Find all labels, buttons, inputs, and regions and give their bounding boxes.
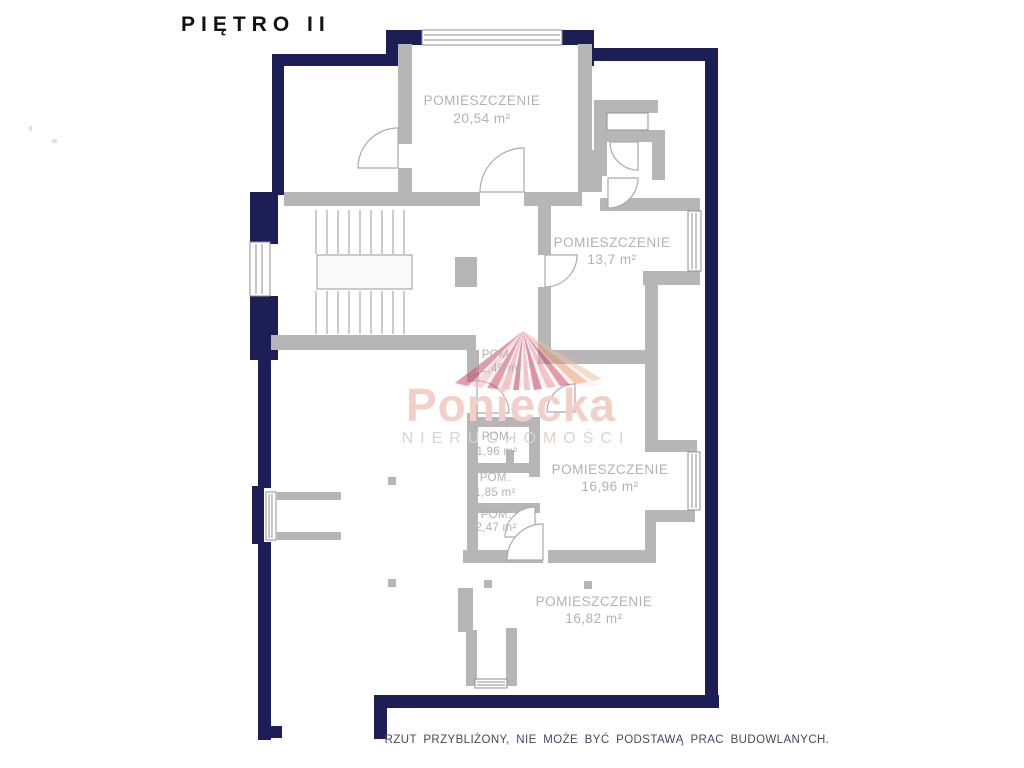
window-staircase [250, 242, 270, 296]
room-name: POM. [481, 509, 512, 521]
room-area: 2,47 m² [475, 522, 516, 534]
window-top [422, 30, 562, 45]
page-title: PIĘTRO II [181, 13, 331, 36]
room-name: POMIESZCZENIE [424, 93, 541, 108]
window-bay-137 [688, 211, 701, 271]
window-bay-1696 [688, 452, 700, 510]
floorplan-drawing: PIĘTRO II [0, 0, 1024, 768]
staircase [316, 210, 412, 334]
room-name: POM. [480, 472, 511, 484]
room-area: 1,96 m² [476, 446, 517, 458]
door-vestibule-1 [610, 142, 638, 170]
room-area: 16,96 m² [581, 479, 638, 494]
door-room-2054-left [358, 128, 398, 168]
room-name: POM. [482, 431, 513, 443]
room-name: POM. [482, 349, 513, 361]
door-room-137 [545, 255, 577, 287]
room-label-2054: POMIESZCZENIE 20,54 m² [424, 93, 541, 126]
door-room-2054-bottom [480, 148, 524, 192]
stair-landing [317, 255, 412, 289]
room-label-1682: POMIESZCZENIE 16,82 m² [536, 594, 653, 626]
floorplan-page: PIĘTRO II [0, 0, 1024, 768]
room-name: POMIESZCZENIE [552, 462, 669, 477]
room-area: 12,49 m² [474, 363, 522, 375]
room-name: POMIESZCZENIE [554, 235, 671, 250]
room-area: 1,85 m² [474, 487, 515, 499]
room-area: 13,7 m² [587, 252, 636, 267]
scan-artifact [29, 126, 57, 143]
room-area: 16,82 m² [565, 611, 622, 626]
room-area: 20,54 m² [453, 111, 510, 126]
room-label-185: POM. 1,85 m² [474, 472, 515, 499]
vestibule-shaft [607, 113, 648, 130]
disclaimer-text: RZUT PRZYBLIŻONY, NIE MOŻE BYĆ PODSTAWĄ … [385, 733, 830, 746]
duct-shaft [458, 588, 517, 688]
room-name: POMIESZCZENIE [536, 594, 653, 609]
watermark-subtitle: NIERUCHOMOŚCI [402, 428, 631, 447]
watermark-brand: Poniecka [406, 379, 616, 431]
room-label-1696: POMIESZCZENIE 16,96 m² [552, 462, 669, 494]
room-label-247: POM. 2,47 m² [475, 509, 516, 534]
balcony [266, 492, 341, 540]
